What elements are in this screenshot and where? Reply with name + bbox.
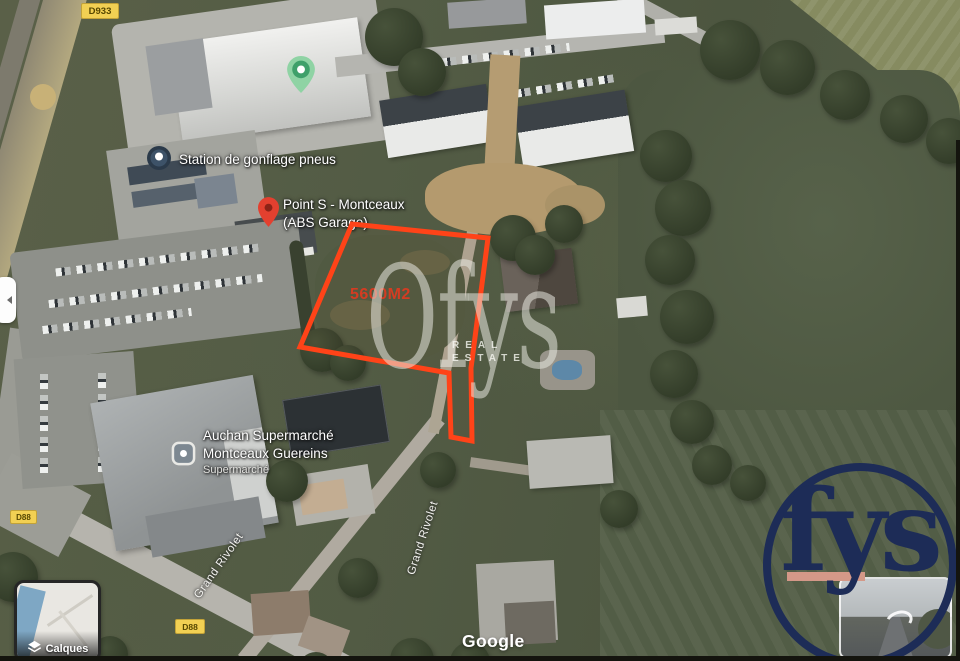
- layers-icon: [27, 639, 42, 654]
- layers-button-caption: Calques: [17, 631, 98, 659]
- map-edge-strip: [0, 656, 960, 661]
- layers-button-label: Calques: [46, 643, 89, 655]
- panel-collapse-tab[interactable]: [0, 277, 16, 323]
- watermark-tagline-estate: ESTATE: [452, 353, 526, 364]
- watermark-brand: Ofys: [366, 248, 561, 390]
- agency-logo: fys: [758, 458, 958, 661]
- watermark-tagline-real: REAL: [452, 340, 503, 351]
- chevron-left-icon: [7, 296, 12, 304]
- layers-button[interactable]: Calques: [14, 580, 101, 661]
- satellite-map-view[interactable]: Station de gonflage pneus Point S - Mont…: [0, 0, 960, 661]
- map-edge-strip: [956, 140, 960, 661]
- logo-wordmark: fys: [780, 476, 936, 588]
